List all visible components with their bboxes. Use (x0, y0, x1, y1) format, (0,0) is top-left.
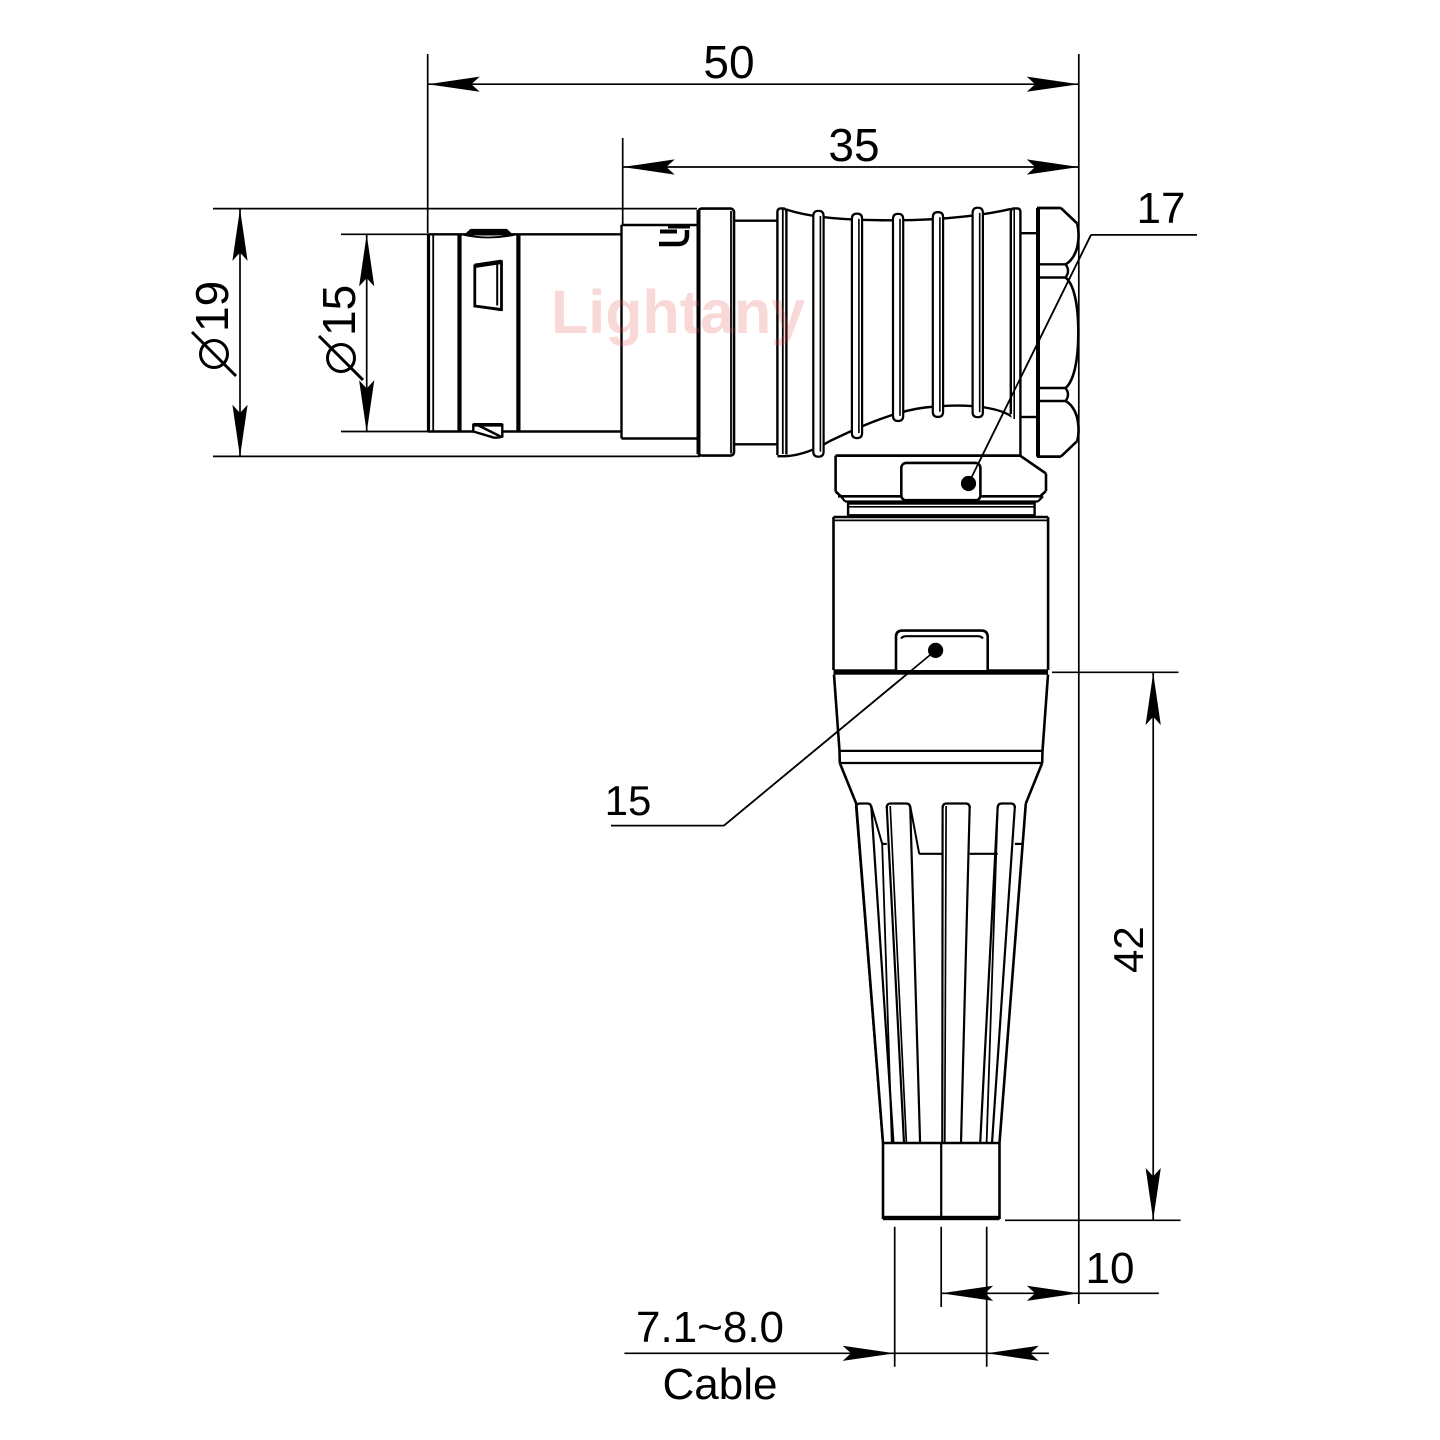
svg-text:17: 17 (1137, 184, 1186, 233)
svg-text:50: 50 (703, 36, 754, 88)
svg-text:15: 15 (605, 777, 652, 824)
svg-text:42: 42 (1105, 926, 1152, 973)
svg-text:Lightany: Lightany (551, 278, 805, 346)
svg-text:Cable: Cable (663, 1360, 778, 1409)
svg-text:19: 19 (186, 281, 238, 332)
svg-text:15: 15 (313, 285, 365, 336)
svg-text:10: 10 (1086, 1244, 1135, 1293)
svg-text:7.1~8.0: 7.1~8.0 (636, 1303, 784, 1352)
svg-text:35: 35 (828, 119, 879, 171)
